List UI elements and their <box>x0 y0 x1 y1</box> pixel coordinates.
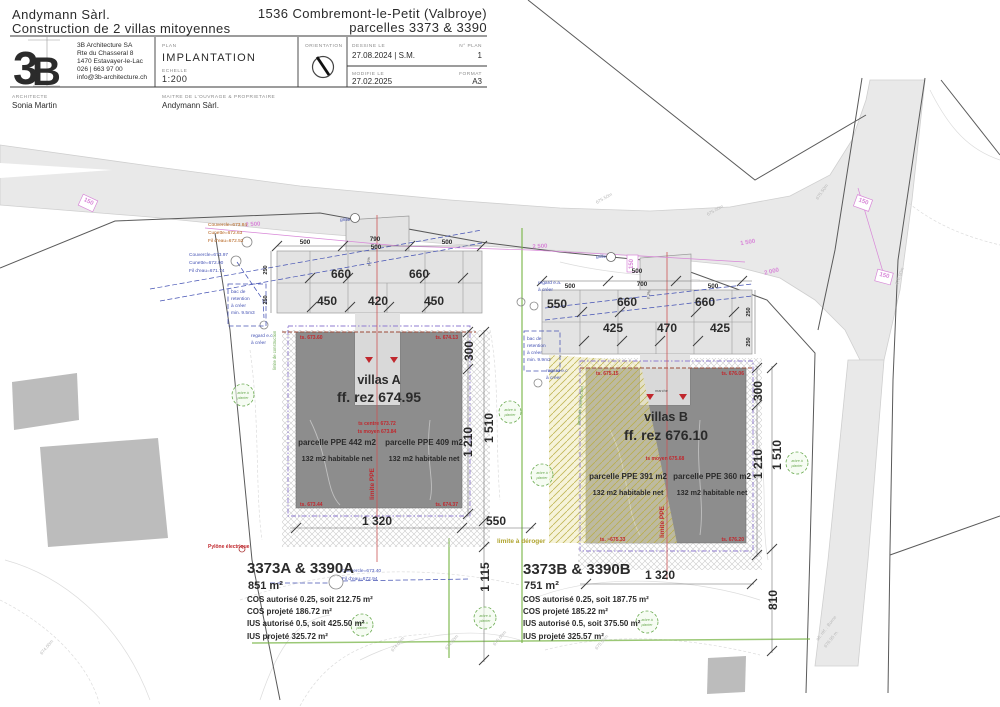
retention-note-b: bac de <box>527 336 542 342</box>
dim: 790 <box>370 236 381 243</box>
dim: 1 510 <box>770 440 784 470</box>
title-block: Andymann Sàrl. Construction de 2 villas … <box>0 0 495 112</box>
manhole <box>517 298 525 306</box>
ts-corner: ts. 673.44 <box>300 502 323 508</box>
dim: 1 210 <box>461 427 475 457</box>
dim-2500: 2 500 <box>532 244 548 251</box>
parcel-b-cos2: COS projeté 185.22 m² <box>523 607 608 616</box>
dim: 500 <box>371 244 382 251</box>
retention-note-a: bac de <box>231 289 246 295</box>
pylon-label: Pylône électrique <box>208 544 250 550</box>
parcel-a-cos1: COS autorisé 0.25, soit 212.75 m² <box>247 595 373 604</box>
company-city: 1470 Estavayer-le-Lac <box>77 58 144 65</box>
dim: 550 <box>547 297 567 311</box>
driveway-b <box>640 254 691 290</box>
company-email: info@3b-architecture.ch <box>77 74 147 81</box>
limite-ppe: limite PPE <box>659 505 666 537</box>
habitable-area: 132 m2 habitable net <box>593 488 664 497</box>
dim: 425 <box>603 321 623 335</box>
limite-ppe: limite PPE <box>369 467 376 499</box>
existing-building <box>40 438 168 547</box>
construction-limit-label: limite de construction <box>272 330 277 370</box>
dim: 660 <box>409 267 429 281</box>
sewer-note: Fil d'eau=671.74 <box>189 268 225 274</box>
owner-title: Andymann Sàrl. <box>12 7 110 22</box>
dim: 1 510 <box>482 413 496 443</box>
dim: 500 <box>565 283 576 290</box>
villa-a-building <box>296 332 462 508</box>
dim: 660 <box>617 295 637 309</box>
parcels-title: parcelles 3373 & 3390 <box>349 20 487 35</box>
habitable-area: 132 m2 habitable net <box>302 454 373 463</box>
villa-a-ts-centre: ts centre 673.72 <box>358 421 396 427</box>
dim: 1 210 <box>751 449 765 479</box>
svg-text:retention: retention <box>527 343 546 349</box>
scale-value: 1:200 <box>162 74 188 84</box>
plan-number-value: 1 <box>478 51 483 60</box>
grille-drain <box>351 214 360 223</box>
tree-to-plant: arbre àplanter <box>531 464 553 486</box>
ts-corner: ts. 674.37 <box>435 502 458 508</box>
ppe-parcel: parcelle PPE 391 m2 <box>589 472 667 481</box>
ts-corner: ts. 675.15 <box>596 371 619 377</box>
derogation-label: limite à déroger <box>497 538 546 545</box>
tree-to-plant: arbre àplanter <box>499 401 521 423</box>
existing-building <box>12 373 79 430</box>
parcel-b-area: 751 m² <box>524 580 559 592</box>
parcel-a-area: 851 m² <box>248 580 283 592</box>
existing-building <box>707 656 746 694</box>
dim: 700 <box>637 281 648 288</box>
dim: 1 115 <box>478 562 492 592</box>
plan-label: PLAN <box>162 43 177 49</box>
contour-label: 675.00m <box>492 630 507 647</box>
habitable-area: 132 m2 habitable net <box>677 488 748 497</box>
parcel-b-title: 3373B & 3390B <box>523 561 631 578</box>
owner-value: Andymann Sàrl. <box>162 101 219 110</box>
parcel-a-ius1: IUS autorisé 0.5, soit 425.50 m² <box>247 619 365 628</box>
svg-text:à créer: à créer <box>231 303 246 309</box>
svg-text:min. 9.5m3: min. 9.5m3 <box>231 310 255 316</box>
slope-label: p 2% <box>366 257 371 266</box>
sewer-note: Fil d'eau=672.52 <box>208 238 244 244</box>
tree-to-plant: arbre àplanter <box>786 452 808 474</box>
svg-text:à créer: à créer <box>251 340 266 346</box>
dim: 500 <box>708 283 719 290</box>
plan-sheet: arbre àplanter arbre àplanter arbre àpla… <box>0 0 1000 707</box>
dim: 660 <box>695 295 715 309</box>
svg-text:planter: planter <box>504 413 517 417</box>
ts-corner: ts. 676.20 <box>721 537 744 543</box>
marche-label: marche <box>655 388 668 393</box>
parcel-a-ius2: IUS projeté 325.72 m² <box>247 632 328 641</box>
villa-b-level: ff. rez 676.10 <box>624 427 708 443</box>
habitable-area: 132 m2 habitable net <box>389 454 460 463</box>
site-plan: arbre àplanter arbre àplanter arbre àpla… <box>0 0 1000 707</box>
dim: 300 <box>751 381 765 401</box>
villa-a-name: villas A <box>357 373 400 387</box>
owner-label: MAITRE DE L'OUVRAGE & PROPRIETAIRE <box>162 94 275 100</box>
dim: 300 <box>462 341 476 361</box>
dim: 250 <box>263 295 269 304</box>
company-street: Rte du Chasseral 8 <box>77 50 134 57</box>
villa-b-ts-moyen: ts moyen 675.68 <box>646 456 685 462</box>
svg-text:retention: retention <box>231 296 250 302</box>
dim: 810 <box>766 590 780 610</box>
dim: 425 <box>710 321 730 335</box>
regard-note: regard e.a. <box>538 280 561 286</box>
project-title: Construction de 2 villas mitoyennes <box>12 21 231 36</box>
grille-label: grille <box>596 254 606 260</box>
villa-a-level: ff. rez 674.95 <box>337 389 421 405</box>
regard-note: regard e.c <box>251 333 273 339</box>
architect-label: ARCHITECTE <box>12 94 48 100</box>
villa-b-name: villas B <box>644 410 688 424</box>
grille-label: grille <box>340 217 350 223</box>
dim: 500 <box>442 239 453 246</box>
grille-drain <box>607 253 616 262</box>
modified-value: 27.02.2025 <box>352 77 393 86</box>
svg-text:à créer: à créer <box>546 375 561 381</box>
plan-value: IMPLANTATION <box>162 52 256 64</box>
svg-text:arbre à: arbre à <box>504 408 515 412</box>
dim-2500: 2 500 <box>245 221 261 228</box>
parcel-b-ius2: IUS projeté 325.57 m² <box>523 632 604 641</box>
location-title: 1536 Combremont-le-Petit (Valbroye) <box>258 6 487 21</box>
svg-text:planter: planter <box>536 476 549 480</box>
architect-value: Sonia Martin <box>12 101 57 110</box>
svg-text:planter: planter <box>479 619 492 623</box>
svg-text:à créer: à créer <box>527 350 542 356</box>
manhole <box>530 302 538 310</box>
parcel-a-cos2: COS projeté 186.72 m² <box>247 607 332 616</box>
dim: 250 <box>263 265 269 274</box>
ppe-parcel: parcelle PPE 409 m2 <box>385 438 463 447</box>
svg-text:planter: planter <box>237 396 250 400</box>
logo-letter-3: 3 <box>13 42 39 94</box>
dim: 450 <box>317 294 337 308</box>
sewer-note: Couvercle=673.84 <box>208 222 247 228</box>
contour-label: 674.00m <box>39 639 54 656</box>
company-phone: 026 | 663 97 00 <box>77 66 123 73</box>
sewer-note: Cunette=672.63 <box>208 230 243 236</box>
svg-text:arbre à: arbre à <box>641 618 652 622</box>
ts-corner: ts. ~675.33 <box>600 537 626 543</box>
parcel-b-cos1: COS autorisé 0.25, soit 187.75 m² <box>523 595 649 604</box>
dim: 500 <box>632 268 643 275</box>
ppe-parcel: parcelle PPE 360 m2 <box>673 472 751 481</box>
manhole <box>534 379 542 387</box>
drawn-value: 27.08.2024 | S.M. <box>352 51 415 60</box>
manhole <box>260 321 268 329</box>
svg-text:arbre à: arbre à <box>536 471 547 475</box>
dim: 450 <box>424 294 444 308</box>
ts-corner: ts. 674.13 <box>435 335 458 341</box>
svg-text:à créer: à créer <box>538 287 553 293</box>
parcel-a-title: 3373A & 3390A <box>247 560 354 577</box>
ts-corner: ts. 676.06 <box>721 371 744 377</box>
orientation-label: ORIENTATION <box>305 43 343 49</box>
dim: 550 <box>486 514 506 528</box>
manhole <box>231 256 241 266</box>
dim: 500 <box>300 239 311 246</box>
manhole <box>329 575 343 589</box>
sewer-note: Couvercle=673.97 <box>189 252 228 258</box>
parcel-b-ius1: IUS autorisé 0.5, soit 375.50 m² <box>523 619 641 628</box>
dim: 1 320 <box>645 568 675 582</box>
dim: 660 <box>331 267 351 281</box>
svg-text:arbre à: arbre à <box>479 614 490 618</box>
tree-to-plant: arbre àplanter <box>474 607 496 629</box>
road-south <box>815 360 884 666</box>
dim: 470 <box>657 321 677 335</box>
svg-text:planter: planter <box>641 623 654 627</box>
svg-text:arbre à: arbre à <box>791 459 802 463</box>
company-name: 3B Architecture SA <box>77 42 133 49</box>
parking-villa-b <box>542 254 752 369</box>
dim: 250 <box>746 337 752 346</box>
dim: 250 <box>746 307 752 316</box>
dim: 1 320 <box>362 514 392 528</box>
drawn-label: DESSINE LE <box>352 43 385 49</box>
ppe-parcel: parcelle PPE 442 m2 <box>298 438 376 447</box>
dim: 420 <box>368 294 388 308</box>
contour-label: 675.50m <box>595 192 613 205</box>
svg-text:arbre à: arbre à <box>237 391 248 395</box>
plan-number-label: N° PLAN <box>459 43 482 49</box>
regard-note: regard e.c <box>546 368 568 374</box>
format-value: A3 <box>472 77 482 86</box>
villa-a-ts-moyen: ts moyen 673.84 <box>358 429 397 435</box>
manhole <box>242 237 252 247</box>
tree-to-plant: arbre àplanter <box>232 384 254 406</box>
ts-corner: ts. 673.60 <box>300 335 323 341</box>
contour-label: 674.50m <box>390 636 405 653</box>
svg-text:min. 9.9m3: min. 9.9m3 <box>527 357 551 363</box>
svg-text:planter: planter <box>791 464 804 468</box>
sewer-note: Cunette=672.00 <box>189 260 224 266</box>
